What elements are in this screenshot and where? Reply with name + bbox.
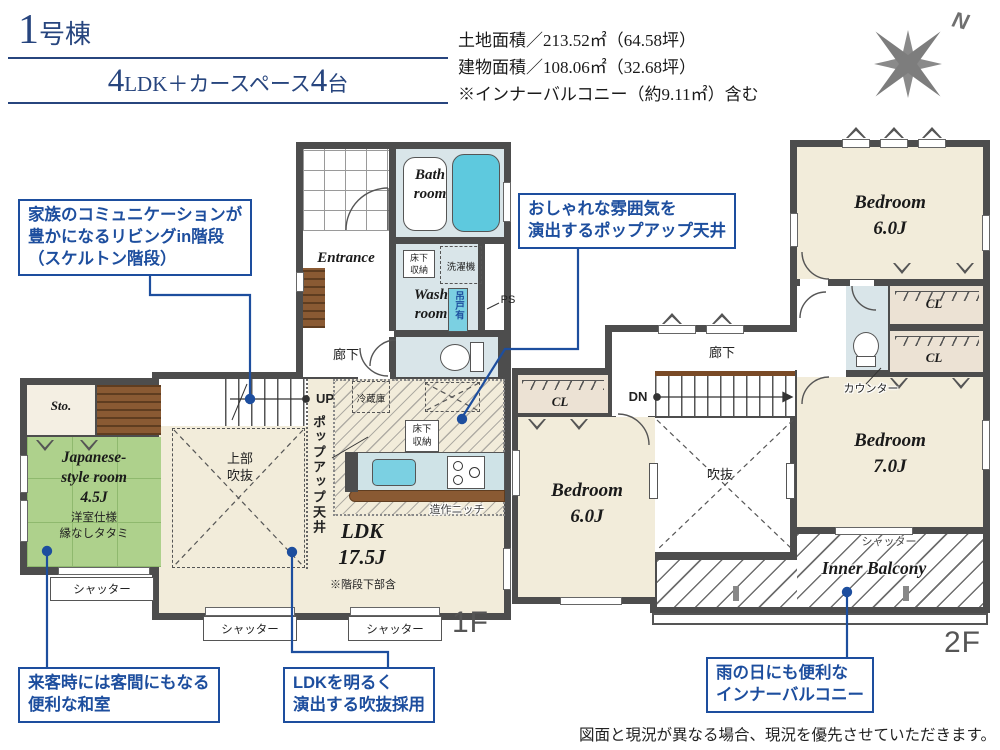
door-opening [368,331,394,337]
cupboard-space [425,382,480,412]
casement-mark [884,127,904,138]
window [20,500,28,542]
land-area: 土地面積／213.52㎡（64.58坪） [458,27,759,54]
window [658,325,696,334]
inner-balcony-label: Inner Balcony [798,558,950,579]
window [350,607,440,616]
bedroom-c-name: Bedroom [806,428,974,454]
car-count: 4 [311,63,328,99]
washer-label: 洗濯機 [441,259,481,273]
page-title: 1号棟 [18,6,91,54]
burner-icon [453,461,463,471]
double-door [786,463,795,499]
door-opening [802,372,828,377]
shutter-label: シャッター [204,621,296,637]
door-opening [616,413,648,417]
japanese-room-notes: 洋室仕様 縁なしタタミ [29,510,159,542]
door-opening [358,372,390,379]
balcony-post [733,586,739,601]
entrance-label: Entrance [303,250,389,267]
upper-void-label-1: 上部 [213,450,267,467]
floor-storage-wash-label2: 収納 [404,264,434,276]
inner-balcony-left [657,560,797,607]
callout-void: LDKを明るく 演出する吹抜採用 [283,667,435,723]
layout-subtitle: 4LDK＋カースペース4台 [8,60,448,102]
japanese-room-note-2: 縁なしタタミ [29,526,159,542]
car-text: 台 [327,72,348,96]
door-opening [800,279,828,286]
hanger-rail [895,336,979,346]
closet-b-label: CL [912,350,956,366]
window [503,548,511,590]
bedroom-c-size: 7.0J [806,454,974,480]
callout-inner-balcony: 雨の日にも便利な インナーバルコニー [706,657,874,713]
toilet-bowl-1f [440,344,470,371]
japanese-room-note-1: 洋室仕様 [29,510,159,526]
bedroom-a-label: Bedroom 6.0J [806,190,974,242]
burner-icon [469,467,480,478]
ldk-count: 4 [108,63,125,99]
casement-mark [662,313,682,324]
bathroom-label-2: room [398,185,462,204]
washroom-label-1: Wash [396,286,466,305]
callout-living-stairs: 家族のコミュニケーションが 豊かになるリビングin階段 （スケルトン階段） [18,199,252,276]
callout-void-line1: LDKを明るく [293,673,425,695]
callout-living-stairs-line1: 家族のコミュニケーションが [28,205,242,227]
entrance-approach-tiles [303,149,389,231]
stairs-dn-2f [655,376,795,416]
window [842,139,870,148]
bedroom-b-size: 6.0J [522,504,652,530]
bedroom-a-size: 6.0J [806,216,974,242]
upper-void-label-2: 吹抜 [213,467,267,484]
floor-storage-wash: 床下 収納 [403,250,435,278]
callout-popup-line2: 演出するポップアップ天井 [528,221,726,243]
bathroom-label: Bath room [398,166,462,204]
window [880,139,908,148]
stairs-up-label: UP [311,391,339,406]
stairs-dn-label: DN [624,389,652,404]
japanese-room-size: 4.5J [29,488,159,508]
shutter-box: シャッター [50,577,154,601]
building-number: 1 [18,7,39,53]
shutter-2f-label: シャッター [856,533,922,549]
door-opening [850,280,874,286]
bedroom-a-name: Bedroom [806,190,974,216]
bedroom-b-name: Bedroom [522,478,652,504]
building-area: 建物面積／108.06㎡（32.68坪） [458,54,759,81]
toilet-tank-1f [470,342,484,372]
window [790,213,798,247]
entrance-steps [303,268,325,328]
callout-popup-line1: おしゃれな雰囲気を [528,199,726,221]
floorplan-sheet: 1号棟 4LDK＋カースペース4台 土地面積／213.52㎡（64.58坪） 建… [0,0,1000,750]
shutter-box: シャッター [348,616,442,641]
window [296,272,304,292]
header-rule-bottom [8,102,448,104]
callout-popup-ceiling: おしゃれな雰囲気を 演出するポップアップ天井 [518,193,736,249]
callout-balcony-line1: 雨の日にも便利な [716,663,864,685]
callout-washitsu: 来客時には客間にもなる 便利な和室 [18,667,220,723]
callout-void-line2: 演出する吹抜採用 [293,695,425,717]
window [982,420,990,470]
hallway-2f-label: 廊下 [698,342,746,361]
window [918,139,946,148]
shutter-label: シャッター [349,621,441,637]
callout-living-stairs-line3: （スケルトン階段） [28,249,242,271]
counter-label: カウンター [840,380,902,396]
washroom-label: Wash room [396,286,466,324]
washroom-label-2: room [396,305,466,324]
casement-mark [922,127,942,138]
area-info: 土地面積／213.52㎡（64.58坪） 建物面積／108.06㎡（32.68坪… [458,27,759,108]
balcony-area-note: ※インナーバルコニー（約9.11㎡）含む [458,81,759,108]
void-2f [655,418,790,552]
void-2f-label: 吹抜 [698,464,742,483]
popup-ceiling-label: ポップアップ天井 [309,415,328,535]
japanese-room-label: Japanese- style room 4.5J [29,448,159,508]
balcony-outer-rim [652,613,988,625]
compass-rose: N [833,2,983,122]
bathroom-label-1: Bath [398,166,462,185]
callout-living-stairs-line2: 豊かになるリビングin階段 [28,227,242,249]
floor1-label: 1F [452,606,489,640]
kitchen-counter-end [345,452,358,492]
window [982,215,990,251]
window [706,325,744,334]
callout-washitsu-line1: 来客時には客間にもなる [28,673,210,695]
bedroom-b-label: Bedroom 6.0J [522,478,652,530]
japanese-room-label-1: Japanese- [29,448,159,468]
washer-space: 洗濯機 [440,246,482,284]
pipe-shaft [485,244,504,330]
closet-c-label: CL [538,394,582,410]
fridge-label: 冷蔵庫 [353,391,389,405]
callout-washitsu-line2: 便利な和室 [28,695,210,717]
window [20,455,28,493]
casement-mark [846,127,866,138]
fridge-space: 冷蔵庫 [352,381,390,413]
floor2-label: 2F [944,626,981,660]
disclaimer-text: 図面と現況が異なる場合、現況を優先させていただきます。 [579,723,996,745]
toilet-tank-2f [856,356,876,367]
casement-mark [712,313,732,324]
shutter-box: シャッター [203,616,297,641]
stair-landing-1f [159,379,225,426]
hall-nook-2f [797,286,846,377]
upper-void-label: 上部 吹抜 [213,450,267,484]
floor-storage-kitchen-label1: 床下 [406,423,438,436]
floor-storage-kitchen-label2: 収納 [406,436,438,449]
wood-deck [97,385,161,435]
storage-label: Sto. [33,398,89,414]
burner-icon [453,475,463,485]
niche-label: 造作ニッチ [426,501,488,517]
window [503,182,511,222]
callout-balcony-line2: インナーバルコニー [716,685,864,707]
upper-void-outline [172,428,305,568]
header-rule-top [8,57,448,59]
north-label: N [950,7,973,35]
balcony-post [903,586,909,601]
window [512,450,520,496]
floor-storage-wash-label1: 床下 [404,252,434,264]
shutter-label: シャッター [51,581,153,597]
stairs-up-1f [225,379,308,426]
ps-label: PS [495,294,521,306]
ldk-text: LDK＋カースペース [124,72,311,96]
kitchen-sink [372,459,416,486]
hallway-1f-label: 廊下 [318,344,374,363]
stove [447,456,485,489]
hanger-rail [522,380,604,390]
bedroom-c-label: Bedroom 7.0J [806,428,974,480]
ldk-size: 17.5J [310,544,414,570]
floor-storage-kitchen: 床下 収納 [405,420,439,452]
ldk-note: ※階段下部含 [308,576,418,592]
japanese-room-label-2: style room [29,468,159,488]
window [58,567,150,575]
closet-a-label: CL [912,296,956,312]
building-suffix: 号棟 [39,20,91,49]
window [560,597,622,605]
window [205,607,295,616]
